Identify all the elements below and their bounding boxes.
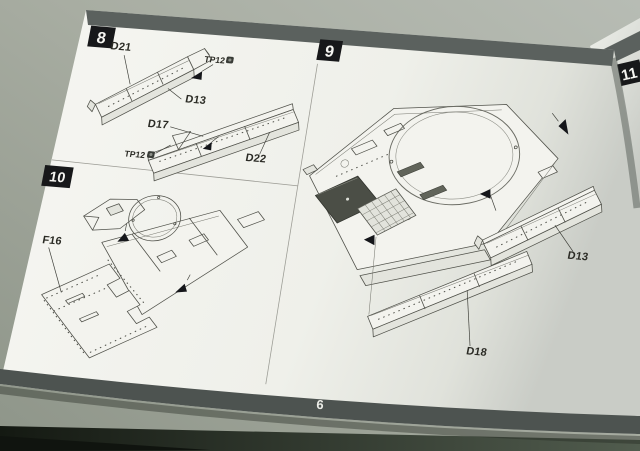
page-number: 6: [316, 397, 324, 412]
photo-scene: 11 6 8: [0, 0, 640, 451]
part-label-f16: F16: [41, 234, 63, 247]
step-9-header: 9: [316, 39, 343, 62]
part-label-tp12-b: TP12: [124, 149, 147, 161]
part-label-tp12-a: TP12: [204, 54, 227, 66]
screw-icon: [147, 151, 155, 158]
part-label-d13-step8: D13: [184, 93, 207, 107]
part-label-d13-step9: D13: [566, 250, 589, 264]
part-label-d18: D18: [465, 345, 488, 359]
part-label-d22: D22: [244, 152, 267, 166]
step-10-header: 10: [41, 165, 73, 188]
step-10-number: 10: [48, 169, 67, 186]
screw-icon: [226, 57, 234, 64]
part-label-d21: D21: [109, 40, 132, 54]
part-label-d17: D17: [147, 118, 170, 132]
instruction-page-photo: 11 6 8: [0, 0, 640, 451]
